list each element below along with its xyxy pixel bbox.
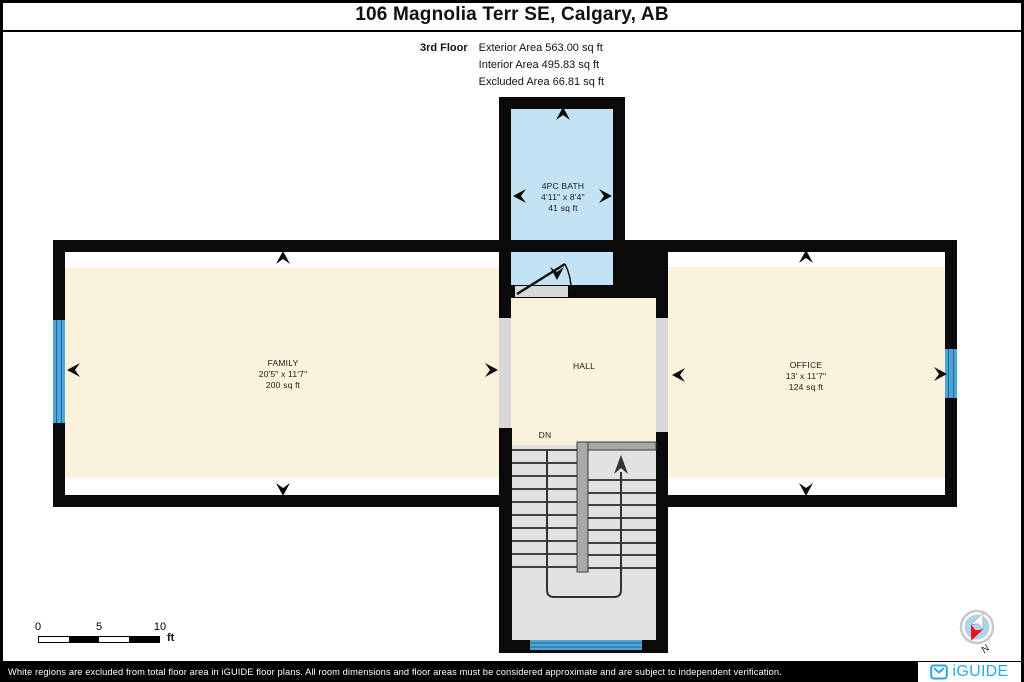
page-border-top <box>0 0 1024 3</box>
compass-icon <box>956 606 1000 650</box>
wall-bath-top <box>499 97 625 109</box>
bath-area: 41 sq ft <box>541 203 585 214</box>
scale-tick-5: 5 <box>96 621 102 633</box>
window-office-right <box>945 349 957 398</box>
floorplan-sheet: 106 Magnolia Terr SE, Calgary, AB 3rd Fl… <box>0 0 1024 682</box>
page-border-left <box>0 0 3 682</box>
room-label-family: FAMILY 20'5" x 11'7" 200 sq ft <box>259 358 308 391</box>
wall-bath-left <box>499 97 511 298</box>
wall-main-bottom-left <box>53 495 511 507</box>
floor-label: 3rd Floor <box>420 40 468 91</box>
room-label-hall: HALL <box>573 361 595 372</box>
iguide-logo: iGUIDE <box>918 662 1021 682</box>
scale-tick-10: 10 <box>154 621 166 633</box>
window-stairwell <box>530 640 642 650</box>
compass: N <box>956 606 1000 658</box>
wall-bath-right <box>613 97 625 298</box>
bath-door-threshold <box>515 286 568 297</box>
family-dimensions: 20'5" x 11'7" <box>259 369 308 380</box>
family-arrow-up-icon <box>276 251 290 264</box>
family-name: FAMILY <box>259 358 308 369</box>
bath-dimensions: 4'11" x 8'4" <box>541 192 585 203</box>
stairwell-floor <box>512 445 656 640</box>
office-dimensions: 13' x 11'7" <box>786 371 826 382</box>
wall-main-bottom-right <box>656 495 957 507</box>
opening-family-hall <box>499 318 511 428</box>
iguide-brand-text: iGUIDE <box>952 664 1008 680</box>
stat-interior-area: Interior Area 495.83 sq ft <box>479 57 599 74</box>
floor-stats: 3rd Floor Exterior Area 563.00 sq ft Int… <box>0 40 1024 91</box>
opening-hall-office <box>656 318 668 432</box>
page-title: 106 Magnolia Terr SE, Calgary, AB <box>0 4 1024 26</box>
title-divider <box>0 30 1024 32</box>
office-name: OFFICE <box>786 360 826 371</box>
room-label-bath: 4PC BATH 4'11" x 8'4" 41 sq ft <box>541 181 585 214</box>
footer-disclaimer: White regions are excluded from total fl… <box>0 667 782 677</box>
hall-floor <box>511 298 656 447</box>
stat-excluded-area: Excluded Area 66.81 sq ft <box>479 74 604 91</box>
footer-bar: White regions are excluded from total fl… <box>0 661 1024 682</box>
scale-unit-label: ft <box>167 632 174 644</box>
scale-tick-0: 0 <box>35 621 41 633</box>
bath-name: 4PC BATH <box>541 181 585 192</box>
room-label-office: OFFICE 13' x 11'7" 124 sq ft <box>786 360 826 393</box>
office-area: 124 sq ft <box>786 382 826 393</box>
stairs-down-label: DN <box>539 430 552 441</box>
wall-hall-left-lower <box>499 428 512 653</box>
family-area: 200 sq ft <box>259 380 308 391</box>
iguide-logo-icon <box>930 664 948 680</box>
wall-hall-right-lower <box>656 432 668 653</box>
wall-filler-bath-office <box>625 240 668 298</box>
window-family-left <box>53 320 65 423</box>
scale-bar-track <box>38 636 160 643</box>
stat-exterior-area: Exterior Area 563.00 sq ft <box>479 40 603 57</box>
